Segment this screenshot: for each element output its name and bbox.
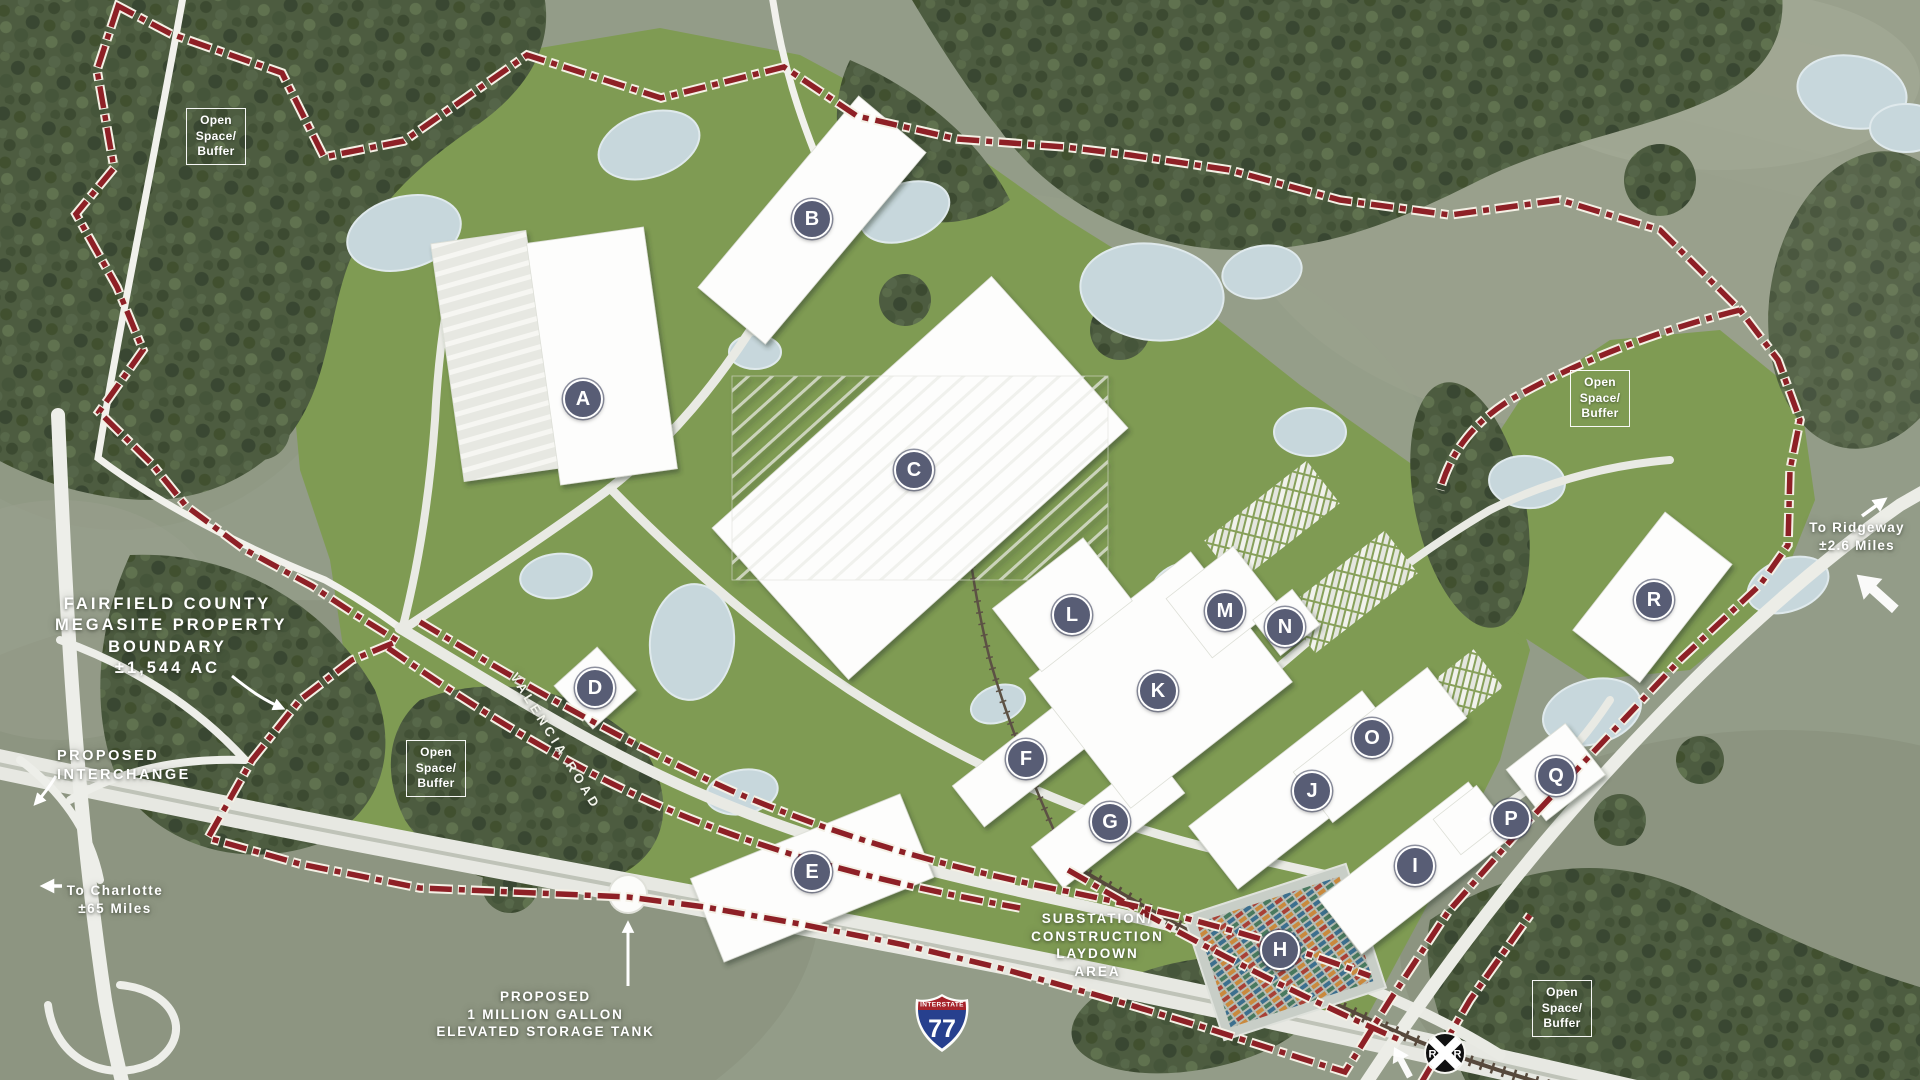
proposed-interchange-label: PROPOSED INTERCHANGE <box>57 747 191 785</box>
building-marker-h: H <box>1260 930 1300 970</box>
storage-tank-label: PROPOSED 1 MILLION GALLON ELEVATED STORA… <box>428 988 663 1041</box>
building-marker-f: F <box>1006 739 1046 779</box>
boundary-title-line: BOUNDARY <box>55 637 280 658</box>
boundary-title-line: MEGASITE PROPERTY <box>55 615 280 636</box>
building-marker-o: O <box>1352 718 1392 758</box>
building-marker-e: E <box>792 852 832 892</box>
boundary-title-label: FAIRFIELD COUNTY MEGASITE PROPERTY BOUND… <box>55 594 280 680</box>
to-ridgeway-label: To Ridgeway ±2.6 Miles <box>1802 519 1912 554</box>
building-marker-k: K <box>1138 671 1178 711</box>
building-marker-d: D <box>575 668 615 708</box>
building-marker-l: L <box>1052 595 1092 635</box>
building-marker-p: P <box>1491 799 1531 839</box>
substation-laydown-label: SUBSTATION/ CONSTRUCTION LAYDOWN AREA <box>1015 910 1180 980</box>
building-marker-m: M <box>1205 591 1245 631</box>
megasite-master-plan-map: INTERSTATE 77 R R FAIRFIELD COUNTY MEGAS… <box>0 0 1920 1080</box>
building-marker-n: N <box>1265 607 1305 647</box>
boundary-title-line: FAIRFIELD COUNTY <box>55 594 280 615</box>
building-marker-j: J <box>1292 771 1332 811</box>
to-charlotte-label: To Charlotte ±65 Miles <box>60 882 170 917</box>
building-marker-r: R <box>1634 580 1674 620</box>
building-marker-g: G <box>1090 802 1130 842</box>
open-space-buffer-label-east: Open Space/ Buffer <box>1570 370 1630 427</box>
label-overlay: FAIRFIELD COUNTY MEGASITE PROPERTY BOUND… <box>0 0 1920 1080</box>
building-marker-b: B <box>792 199 832 239</box>
open-space-buffer-label-southwest: Open Space/ Buffer <box>406 740 466 797</box>
building-marker-c: C <box>894 450 934 490</box>
open-space-buffer-label-northwest: Open Space/ Buffer <box>186 108 246 165</box>
building-marker-a: A <box>563 379 603 419</box>
building-marker-i: I <box>1395 846 1435 886</box>
boundary-title-line: ±1,544 AC <box>55 658 280 679</box>
building-marker-q: Q <box>1536 756 1576 796</box>
open-space-buffer-label-southeast: Open Space/ Buffer <box>1532 980 1592 1037</box>
